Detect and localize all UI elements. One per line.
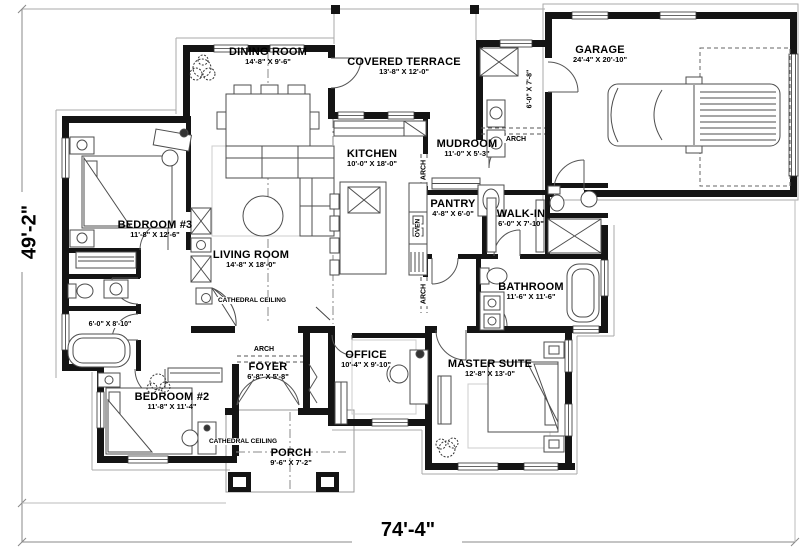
room-dims: 13'-8" X 12'-0" bbox=[347, 68, 461, 76]
kitchen-furniture bbox=[330, 121, 427, 275]
bath-dims-label: 6'-0" X 8'-10" bbox=[87, 321, 134, 328]
room-dims: 10'-0" X 18'-0" bbox=[347, 160, 397, 168]
room-label-master-suite: MASTER SUITE 12'-8" X 13'-0" bbox=[448, 358, 532, 379]
room-dims: 14'-8" X 18'-0" bbox=[213, 261, 289, 269]
room-label-mudroom: MUDROOM 11'-0" X 5'-3" bbox=[437, 138, 498, 159]
floor-plan-drawing bbox=[0, 0, 800, 554]
coffee-table bbox=[243, 196, 283, 236]
room-dims: 14'-8" X 9'-6" bbox=[229, 58, 307, 66]
cathedral-leader-right bbox=[316, 307, 330, 320]
room-dims: 11'-0" X 5'-3" bbox=[437, 150, 498, 158]
arch-kitchen-top-label: ARCH bbox=[421, 158, 428, 182]
room-label-dining-room: DINING ROOM 14'-8" X 9'-6" bbox=[229, 46, 307, 67]
room-label-garage: GARAGE 24'-4" X 20'-10" bbox=[573, 44, 627, 65]
room-label-kitchen: KITCHEN 10'-0" X 18'-0" bbox=[347, 148, 397, 169]
room-label-office: OFFICE 10'-4" X 9'-10" bbox=[341, 349, 391, 370]
room-label-porch: PORCH 9'-6" X 7'-2" bbox=[270, 447, 312, 468]
room-dims: 10'-4" X 9'-10" bbox=[341, 361, 391, 369]
floor-plan: DINING ROOM 14'-8" X 9'-6" COVERED TERRA… bbox=[0, 0, 800, 554]
room-label-covered-terrace: COVERED TERRACE 13'-8" X 12'-0" bbox=[347, 56, 461, 77]
room-dims: 9'-6" X 7'-2" bbox=[270, 459, 312, 467]
room-dims: 12'-8" X 13'-0" bbox=[448, 370, 532, 378]
room-dims: 6'-8" X 5'-8" bbox=[247, 373, 289, 381]
room-label-foyer: FOYER 6'-8" X 5'-8" bbox=[247, 361, 289, 382]
room-label-walk-in: WALK-IN 6'-0" X 7'-10" bbox=[497, 208, 545, 229]
room-label-bedroom-3: BEDROOM #3 11'-8" X 12'-6" bbox=[118, 219, 193, 240]
room-dims: 6'-0" X 7'-10" bbox=[497, 220, 545, 228]
room-dims: 24'-4" X 20'-10" bbox=[573, 56, 627, 64]
overall-width-dimension: 74'-4" bbox=[375, 519, 441, 542]
arch-corridor-label: ARCH bbox=[504, 136, 528, 143]
room-label-bathroom: BATHROOM 11'-6" X 11'-6" bbox=[498, 281, 564, 302]
arch-foyer-label: ARCH bbox=[252, 346, 276, 353]
room-dims: 11'-6" X 11'-6" bbox=[498, 293, 564, 301]
arch-kitchen-bottom-label: ARCH bbox=[421, 282, 428, 306]
room-dims: 11'-8" X 11'-4" bbox=[135, 403, 210, 411]
oven-label: OVEN bbox=[415, 217, 422, 239]
bifold-closet-door bbox=[309, 364, 317, 403]
cathedral-ceiling-porch-label: CATHEDRAL CEILING bbox=[207, 438, 279, 445]
room-dims: 11'-8" X 12'-6" bbox=[118, 231, 193, 239]
dining-table bbox=[217, 85, 319, 156]
room-label-pantry: PANTRY 4'-8" X 6'-0" bbox=[430, 198, 475, 219]
garage-truck bbox=[608, 77, 780, 153]
fireplace bbox=[196, 288, 236, 326]
hall-dims-label: 6'-0" X 7'-8" bbox=[527, 68, 534, 111]
cathedral-ceiling-living-label: CATHEDRAL CEILING bbox=[216, 297, 288, 304]
room-dims: 4'-8" X 6'-0" bbox=[430, 210, 475, 218]
overall-height-dimension: 49'-2" bbox=[19, 199, 42, 265]
room-label-bedroom-2: BEDROOM #2 11'-8" X 11'-4" bbox=[135, 391, 210, 412]
room-label-living-room: LIVING ROOM 14'-8" X 18'-0" bbox=[213, 249, 289, 270]
